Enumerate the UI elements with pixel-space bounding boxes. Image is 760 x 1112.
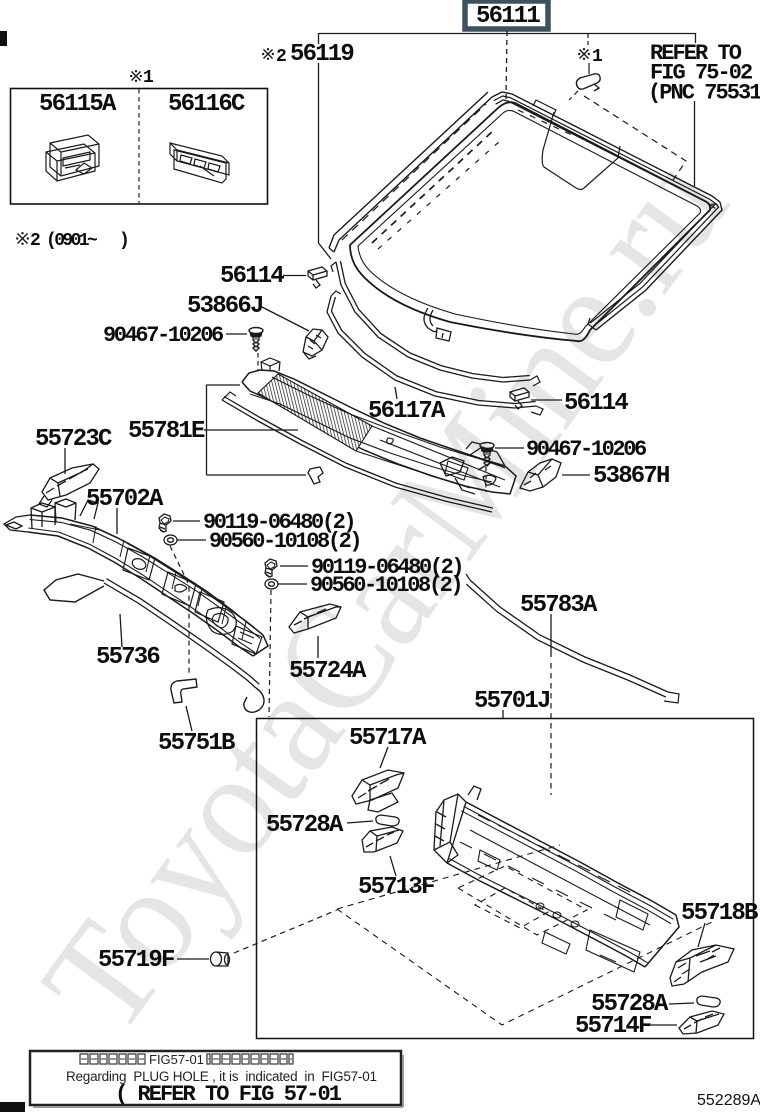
svg-text:(0901~: (0901~ — [46, 231, 97, 251]
svg-text:55718B: 55718B — [681, 900, 758, 927]
svg-text:56111: 56111 — [476, 3, 540, 30]
svg-text:90560-10108(2): 90560-10108(2) — [209, 529, 360, 554]
svg-text:55719F: 55719F — [98, 947, 174, 974]
svg-text:55728A: 55728A — [266, 812, 344, 839]
svg-text:55713F: 55713F — [358, 874, 434, 901]
svg-text:90467-10206: 90467-10206 — [103, 323, 223, 348]
svg-text:53867H: 53867H — [593, 463, 669, 490]
svg-text:56115A: 56115A — [39, 91, 117, 118]
svg-text:55714F: 55714F — [575, 1013, 651, 1040]
svg-text:55702A: 55702A — [86, 486, 164, 513]
svg-text:56116C: 56116C — [168, 91, 245, 118]
svg-text:(PNC 75531: (PNC 75531 — [648, 81, 760, 106]
svg-text:55783A: 55783A — [520, 592, 598, 619]
svg-text:55724A: 55724A — [289, 658, 367, 685]
svg-text:90467-10206: 90467-10206 — [526, 437, 646, 462]
svg-text:): ) — [119, 231, 127, 251]
svg-text:90560-10108(2): 90560-10108(2) — [310, 573, 461, 598]
svg-text:552289A: 552289A — [697, 1092, 760, 1109]
svg-text:53866J: 53866J — [187, 293, 263, 320]
svg-text:55736: 55736 — [96, 644, 160, 671]
svg-text:55723C: 55723C — [35, 426, 112, 453]
svg-text:( REFER TO FIG 57-01: ( REFER TO FIG 57-01 — [115, 1082, 342, 1107]
svg-text:55701J: 55701J — [474, 688, 550, 715]
svg-text:55781E: 55781E — [128, 418, 205, 445]
svg-text:55751B: 55751B — [158, 730, 235, 757]
svg-text:56114: 56114 — [564, 390, 628, 417]
svg-text:56114: 56114 — [220, 263, 284, 290]
svg-text:FIG57-01: FIG57-01 — [149, 1052, 204, 1067]
svg-text:56119: 56119 — [290, 41, 353, 68]
